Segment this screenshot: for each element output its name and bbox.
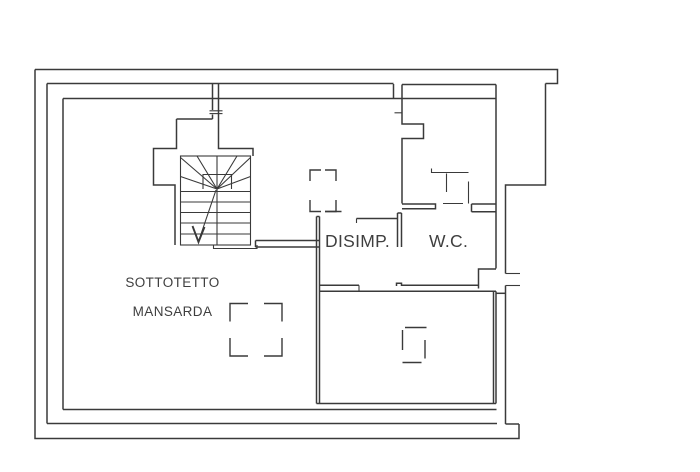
sottotetto-line1: SOTTOTETTO bbox=[125, 275, 219, 290]
stair-winder-fan bbox=[181, 156, 251, 189]
room-label-sottotetto: SOTTOTETTO MANSARDA bbox=[100, 276, 245, 320]
floor-plan: SOTTOTETTO MANSARDA DISIMP. W.C. bbox=[0, 0, 700, 472]
room-label-wc: W.C. bbox=[429, 233, 468, 251]
staircase bbox=[181, 156, 258, 249]
right-wall-window-ticks bbox=[506, 274, 521, 286]
skylight-square-upper bbox=[310, 170, 342, 212]
stairwell-walls bbox=[154, 84, 254, 246]
perimeter-walls bbox=[35, 70, 558, 439]
skylight-square-bottom-room bbox=[403, 328, 427, 363]
wc-fixture bbox=[432, 169, 469, 204]
sottotetto-line2: MANSARDA bbox=[133, 304, 213, 319]
room-label-disimpegno: DISIMP. bbox=[325, 233, 390, 251]
